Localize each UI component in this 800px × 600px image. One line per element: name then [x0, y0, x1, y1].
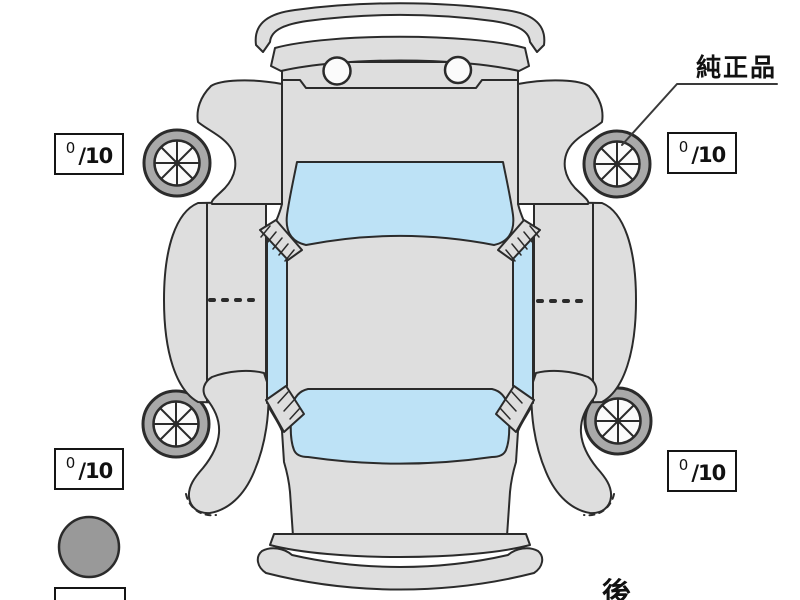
rear-window-glass	[291, 389, 510, 464]
tire-score-value: 0	[66, 456, 76, 471]
rear-bumper-band	[270, 534, 530, 557]
rear-label: 後	[602, 570, 631, 600]
tire-score-front-left: 0/10	[54, 133, 124, 175]
marker-circle	[59, 517, 119, 577]
car-body	[264, 62, 536, 536]
tire-score-denominator: /10	[78, 146, 112, 167]
side-window-glass-left	[267, 238, 287, 403]
side-window-glass-right	[513, 238, 533, 403]
tire-score-rear-left: 0/10	[54, 448, 124, 490]
hood-circle-left	[324, 58, 351, 85]
windshield-glass	[287, 162, 514, 245]
tire-score-denominator: /10	[78, 461, 112, 482]
fender-front-right	[518, 80, 602, 204]
tire-score-front-right: 0/10	[667, 132, 737, 174]
genuine-part-label: 純正品	[696, 48, 777, 84]
tire-score-value: 0	[679, 140, 689, 155]
tire-score-value: 0	[679, 458, 689, 473]
tire-score-denominator: /10	[691, 145, 725, 166]
vehicle-condition-diagram: 0/10 0/10 0/10 0/10 純正品 後	[0, 0, 800, 600]
wheel-front-right-icon	[584, 131, 650, 197]
car-top-view	[0, 0, 800, 600]
tire-score-denominator: /10	[691, 463, 725, 484]
wheel-front-left-icon	[144, 130, 210, 196]
fender-front-left	[198, 80, 282, 204]
hood-circle-right	[445, 57, 471, 83]
tire-score-value: 0	[66, 141, 76, 156]
tire-score-rear-right: 0/10	[667, 450, 737, 492]
partial-score-box	[54, 587, 126, 600]
